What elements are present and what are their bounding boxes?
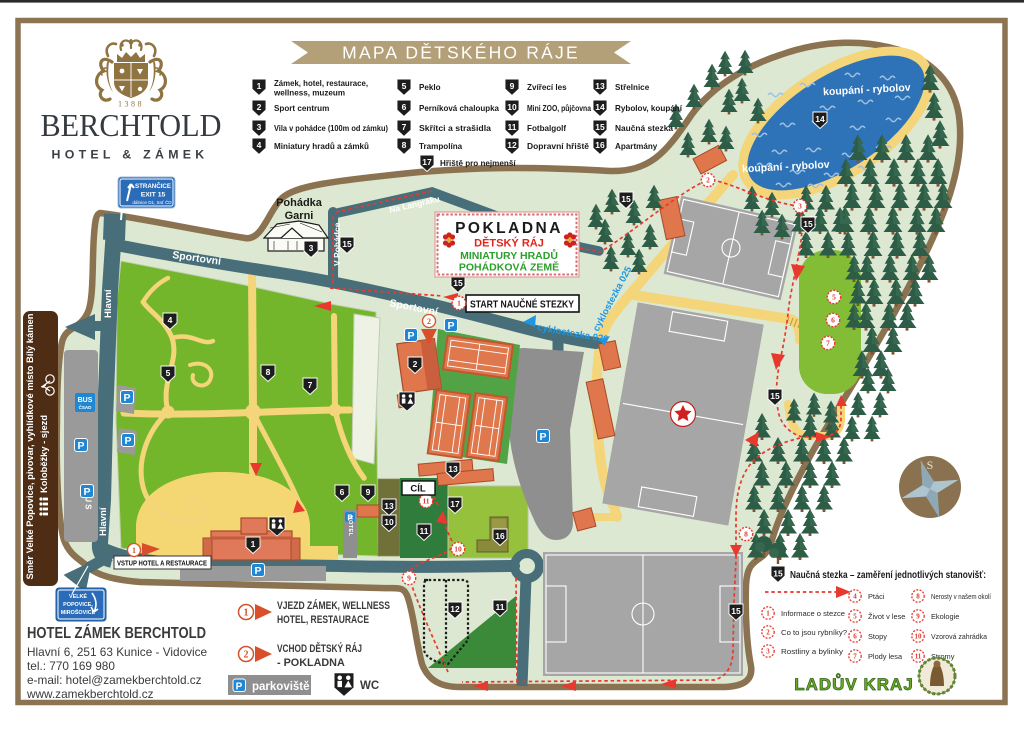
svg-text:Perníková chaloupka: Perníková chaloupka: [419, 104, 499, 113]
svg-text:1: 1: [251, 539, 256, 549]
svg-text:8: 8: [402, 140, 407, 150]
svg-text:11: 11: [508, 122, 517, 132]
svg-text:3: 3: [798, 202, 802, 211]
svg-text:13: 13: [448, 464, 458, 474]
svg-text:9: 9: [916, 613, 920, 621]
svg-text:11: 11: [915, 653, 922, 661]
svg-text:2: 2: [257, 102, 262, 112]
svg-text:16: 16: [595, 140, 605, 150]
svg-text:parkoviště: parkoviště: [252, 681, 310, 693]
svg-text:10: 10: [454, 545, 462, 554]
svg-text:2: 2: [244, 650, 249, 661]
svg-text:Rostliny a bylinky: Rostliny a bylinky: [781, 647, 843, 656]
svg-text:12: 12: [507, 140, 517, 150]
svg-text:HOTEL: HOTEL: [347, 516, 353, 537]
svg-text:Ekologie: Ekologie: [931, 612, 959, 621]
svg-text:Plody lesa: Plody lesa: [868, 652, 903, 661]
svg-text:CÍL: CÍL: [410, 484, 426, 495]
svg-text:7: 7: [853, 653, 857, 661]
svg-text:POKLADNA: POKLADNA: [455, 220, 563, 237]
svg-text:BERCHTOLD: BERCHTOLD: [41, 108, 222, 143]
svg-text:Hlavní: Hlavní: [98, 507, 109, 536]
svg-text:Fotbalgolf: Fotbalgolf: [527, 124, 566, 133]
svg-text:Rybolov, koupání: Rybolov, koupání: [615, 104, 683, 113]
svg-text:Co to jsou rybníky?: Co to jsou rybníky?: [781, 628, 847, 637]
svg-text:Mini ZOO, půjčovna: Mini ZOO, půjčovna: [527, 104, 591, 113]
svg-text:Trampolína: Trampolína: [419, 142, 463, 151]
svg-text:8: 8: [744, 530, 748, 539]
svg-text:6: 6: [402, 102, 407, 112]
svg-text:14: 14: [815, 114, 825, 124]
svg-text:13: 13: [384, 501, 394, 511]
svg-text:Naučná stezka: Naučná stezka: [615, 124, 674, 133]
svg-text:tel.: 770 169 980: tel.: 770 169 980: [27, 659, 115, 673]
svg-text:VELKÉ: VELKÉ: [69, 592, 87, 600]
svg-text:MAPA DĚTSKÉHO RÁJE: MAPA DĚTSKÉHO RÁJE: [342, 43, 580, 63]
svg-text:15: 15: [773, 569, 783, 579]
svg-text:Stopy: Stopy: [868, 632, 887, 641]
svg-text:Zvířecí les: Zvířecí les: [527, 83, 567, 92]
svg-text:Apartmány: Apartmány: [615, 142, 658, 151]
svg-text:1: 1: [766, 610, 770, 618]
svg-text:Peklo: Peklo: [419, 83, 441, 92]
svg-text:6: 6: [853, 633, 857, 641]
svg-text:Informace o stezce: Informace o stezce: [781, 609, 845, 618]
svg-text:LADŮV KRAJ: LADŮV KRAJ: [794, 674, 914, 694]
svg-text:17: 17: [450, 499, 460, 509]
svg-text:5: 5: [832, 293, 836, 302]
svg-text:6: 6: [831, 316, 835, 325]
svg-text:4: 4: [168, 315, 173, 325]
svg-text:8: 8: [916, 593, 920, 601]
svg-text:Směr Velké Popovice, pivovar,: Směr Velké Popovice, pivovar, vyhlídkové…: [25, 313, 35, 579]
svg-text:9: 9: [366, 487, 371, 497]
svg-text:WC: WC: [360, 680, 379, 692]
svg-text:1: 1: [132, 546, 136, 555]
svg-text:Nerosty v našem okolí: Nerosty v našem okolí: [931, 592, 992, 601]
svg-text:14: 14: [595, 102, 605, 112]
svg-text:Dopravní hřiště: Dopravní hřiště: [527, 142, 590, 151]
svg-text:Koloběžky - sjezd: Koloběžky - sjezd: [39, 415, 49, 493]
svg-text:10: 10: [915, 633, 923, 641]
svg-text:dálnice D1, trať ČD: dálnice D1, trať ČD: [132, 199, 172, 205]
svg-text:START NAUČNÉ STEZKY: START NAUČNÉ STEZKY: [470, 298, 574, 311]
svg-text:Vzorová zahrádka: Vzorová zahrádka: [931, 632, 988, 641]
svg-text:VCHOD DĚTSKÝ RÁJ: VCHOD DĚTSKÝ RÁJ: [277, 642, 362, 655]
svg-text:2: 2: [706, 176, 710, 185]
svg-text:DĚTSKÝ RÁJ: DĚTSKÝ RÁJ: [474, 237, 544, 250]
svg-text:9: 9: [407, 574, 411, 583]
svg-text:7: 7: [308, 380, 313, 390]
svg-text:Ptáci: Ptáci: [868, 592, 885, 601]
svg-text:4: 4: [853, 593, 857, 601]
svg-text:2: 2: [413, 359, 418, 369]
svg-text:11: 11: [420, 526, 429, 536]
svg-text:MINIATURY HRADŮ: MINIATURY HRADŮ: [460, 248, 558, 262]
svg-text:Naučná stezka – zaměření jedno: Naučná stezka – zaměření jednotlivých st…: [790, 569, 986, 581]
svg-text:Vila v pohádce (100m od zámku): Vila v pohádce (100m od zámku): [274, 124, 388, 133]
svg-text:9: 9: [510, 81, 515, 91]
svg-text:10: 10: [507, 102, 517, 112]
svg-text:POPOVICE,: POPOVICE,: [63, 602, 93, 608]
svg-text:EXIT 15: EXIT 15: [141, 192, 166, 199]
svg-text:15: 15: [342, 239, 352, 249]
svg-text:Skřítci a strašidla: Skřítci a strašidla: [419, 124, 492, 133]
svg-text:Garni: Garni: [285, 210, 314, 222]
svg-text:11: 11: [496, 602, 505, 612]
svg-text:HOTEL, RESTAURACE: HOTEL, RESTAURACE: [277, 614, 369, 626]
svg-text:V Pohádce: V Pohádce: [332, 222, 342, 266]
svg-text:1: 1: [457, 299, 461, 308]
svg-text:VJEZD ZÁMEK, WELLNESS: VJEZD ZÁMEK, WELLNESS: [277, 599, 390, 612]
svg-text:HOTEL ZÁMEK BERCHTOLD: HOTEL ZÁMEK BERCHTOLD: [27, 625, 206, 642]
svg-text:- POKLADNA: - POKLADNA: [277, 657, 345, 669]
svg-text:7: 7: [826, 339, 830, 348]
svg-text:Hřiště pro nejmenší: Hřiště pro nejmenší: [440, 159, 516, 168]
svg-text:3: 3: [766, 648, 770, 656]
svg-text:2: 2: [766, 629, 770, 637]
svg-text:6: 6: [340, 487, 345, 497]
svg-text:15: 15: [770, 391, 780, 401]
svg-text:8: 8: [266, 367, 271, 377]
svg-text:ČSAD: ČSAD: [79, 404, 93, 410]
svg-text:BUS: BUS: [78, 397, 93, 404]
svg-text:Zámek, hotel, restaurace,: Zámek, hotel, restaurace,: [274, 79, 368, 88]
svg-text:www.zamekberchtold.cz: www.zamekberchtold.cz: [26, 687, 154, 701]
svg-text:13: 13: [595, 81, 605, 91]
svg-text:HOTEL & ZÁMEK: HOTEL & ZÁMEK: [52, 149, 209, 162]
svg-text:MIROŠOVICE: MIROŠOVICE: [61, 608, 96, 616]
svg-text:Život v lese: Život v lese: [868, 612, 905, 621]
svg-text:11: 11: [422, 497, 429, 506]
svg-text:Hlavní 6, 251 63 Kunice - Vi: Hlavní 6, 251 63 Kunice - Vidovice: [27, 645, 208, 659]
svg-text:POHÁDKOVÁ ZEMĚ: POHÁDKOVÁ ZEMĚ: [459, 261, 559, 274]
svg-text:15: 15: [621, 194, 631, 204]
svg-text:Střelnice: Střelnice: [615, 83, 650, 92]
svg-text:15: 15: [731, 606, 741, 616]
svg-text:Hlavní: Hlavní: [103, 289, 114, 318]
svg-text:16: 16: [495, 531, 505, 541]
svg-text:P: P: [236, 682, 243, 693]
svg-text:Pohádka: Pohádka: [276, 197, 323, 209]
svg-text:STRANČICE: STRANČICE: [135, 183, 171, 190]
svg-text:15: 15: [803, 219, 813, 229]
svg-text:17: 17: [422, 157, 432, 167]
svg-text:5: 5: [166, 368, 171, 378]
svg-text:15: 15: [595, 122, 605, 132]
svg-text:1: 1: [244, 608, 249, 619]
svg-text:10: 10: [384, 517, 394, 527]
svg-text:Sport centrum: Sport centrum: [274, 104, 329, 113]
svg-text:S: S: [927, 458, 934, 472]
svg-text:wellness, muzeum: wellness, muzeum: [273, 89, 345, 98]
svg-text:15: 15: [453, 278, 463, 288]
svg-text:4: 4: [257, 140, 262, 150]
svg-text:2: 2: [427, 317, 431, 326]
svg-text:3: 3: [309, 243, 314, 253]
svg-text:12: 12: [450, 604, 460, 614]
svg-text:7: 7: [402, 122, 407, 132]
svg-text:5: 5: [853, 613, 857, 621]
svg-text:1: 1: [257, 81, 262, 91]
svg-text:3: 3: [257, 122, 262, 132]
svg-text:Miniatury hradů a zámků: Miniatury hradů a zámků: [274, 142, 369, 151]
svg-text:5: 5: [402, 81, 407, 91]
svg-text:e-mail: hotel@zamekberchtold.c: e-mail: hotel@zamekberchtold.cz: [27, 673, 202, 687]
svg-text:VSTUP HOTEL A RESTAURACE: VSTUP HOTEL A RESTAURACE: [117, 559, 207, 568]
